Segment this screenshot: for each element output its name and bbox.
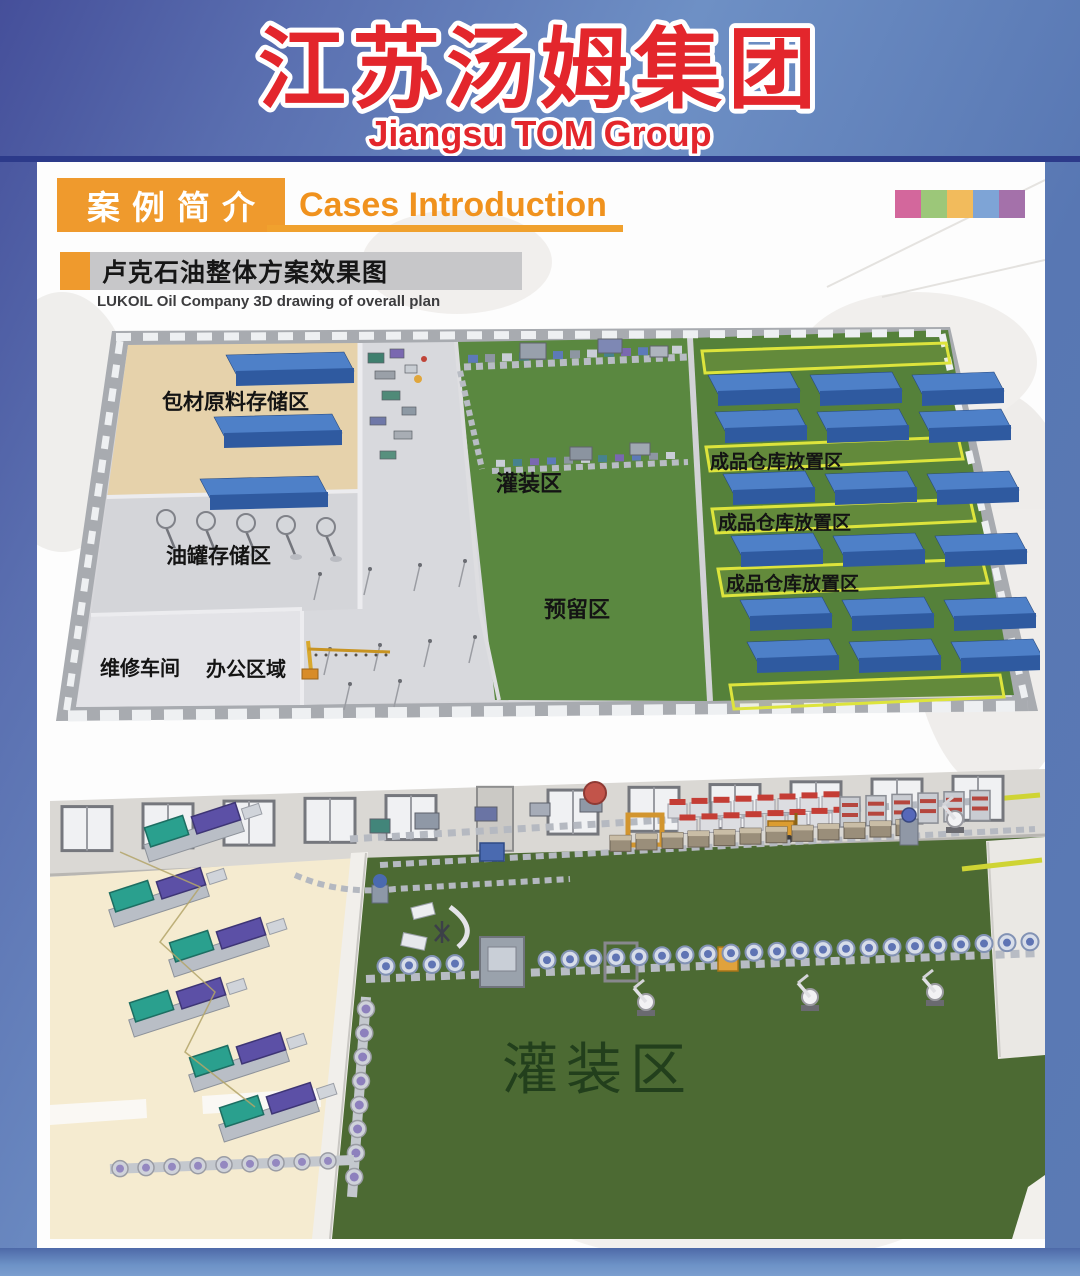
header-title-graphic: 江苏汤姆集团 Jiangsu TOM Group [0,0,1080,158]
zone-label-office: 办公区域 [206,657,286,681]
company-title-en: Jiangsu TOM Group [368,113,711,154]
section-underline [267,225,623,232]
zone-label-packaging-storage: 包材原料存储区 [162,390,309,414]
case-title-cn: 卢克石油整体方案效果图 [102,253,388,289]
palette-strip [895,190,1025,218]
section-badge-label: 案例简介 [75,181,267,229]
zone-label-filling: 灌装区 [496,471,562,496]
palette-swatch-3 [947,190,973,218]
molding-area-floor [50,858,358,1239]
case-banner: 卢克石油整体方案效果图 [60,252,522,290]
zone-label-warehouse-2: 成品仓库放置区 [718,511,851,534]
poster-page: 江苏汤姆集团 Jiangsu TOM Group 案例简介 Cases Intr… [0,0,1080,1276]
zone-label-filling-large: 灌装区 [502,1040,694,1102]
top-plan-figure: 包材原料存储区 油罐存储区 维修车间 办公区域 灌装区 预留区 成品仓库放置区 … [50,319,1040,739]
case-banner-accent [60,252,90,290]
section-badge: 案例简介 [57,178,285,232]
section-title-en: Cases Introduction [299,186,607,225]
header-banner: 江苏汤姆集团 Jiangsu TOM Group [0,0,1080,158]
palette-swatch-5 [999,190,1025,218]
zone-label-warehouse-1: 成品仓库放置区 [710,450,843,473]
case-subtitle-en: LUKOIL Oil Company 3D drawing of overall… [97,293,440,310]
zone-label-maintenance: 维修车间 [100,656,180,680]
footer-band [0,1248,1080,1276]
company-title-cn: 江苏汤姆集团 [258,20,822,119]
zone-filling-floor [456,338,710,701]
palette-swatch-2 [921,190,947,218]
bottom-plan-figure: 灌装区 [50,757,1045,1239]
content-panel: 案例简介 Cases Introduction 卢克石油整体方案效果图 LUKO… [37,162,1045,1248]
palette-swatch-1 [895,190,921,218]
zone-label-warehouse-3: 成品仓库放置区 [726,572,859,595]
zone-label-reserved: 预留区 [544,597,610,622]
filling-area-floor [318,837,1045,1239]
palette-swatch-4 [973,190,999,218]
zone-label-oil-tank-storage: 油罐存储区 [166,544,271,568]
